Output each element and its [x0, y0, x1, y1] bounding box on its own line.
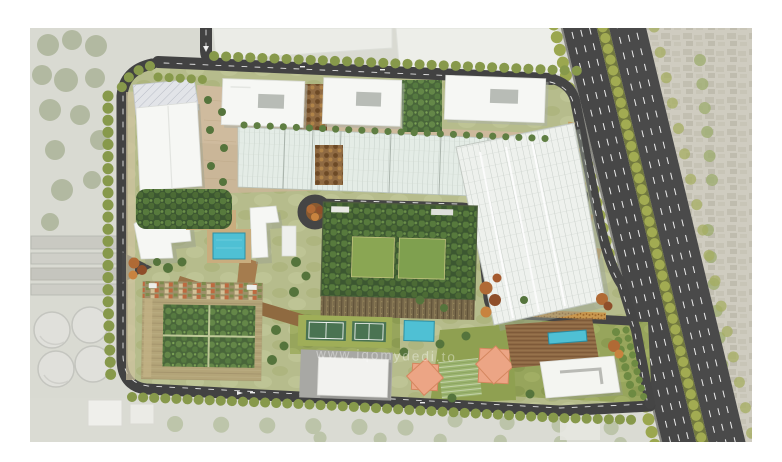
clubhouse: [540, 356, 620, 398]
roof-lawn-panel-2: [398, 238, 445, 279]
podium-roof: [317, 357, 388, 397]
atrium-courtyard-rust: [315, 145, 343, 185]
site-plan-svg: www.iqomydedi.to: [0, 0, 782, 462]
leisure-pool: [404, 321, 435, 342]
facade-band: [143, 281, 263, 300]
swimming-pool: [213, 233, 245, 259]
northwest-tree-band: [136, 189, 232, 229]
master-plan-image: www.iqomydedi.to: [0, 0, 782, 462]
residential-courtyard-block: [141, 281, 263, 381]
office-slabs: [221, 75, 549, 130]
roof-lawn-panel-1: [351, 237, 394, 278]
green-planting-band: [402, 80, 442, 132]
northwest-building: [133, 79, 205, 193]
green-roof-office-block: [320, 202, 477, 320]
boundary-wall-strip: [126, 92, 135, 380]
deck-pool: [548, 330, 587, 344]
orange-tower-2: [475, 345, 515, 385]
